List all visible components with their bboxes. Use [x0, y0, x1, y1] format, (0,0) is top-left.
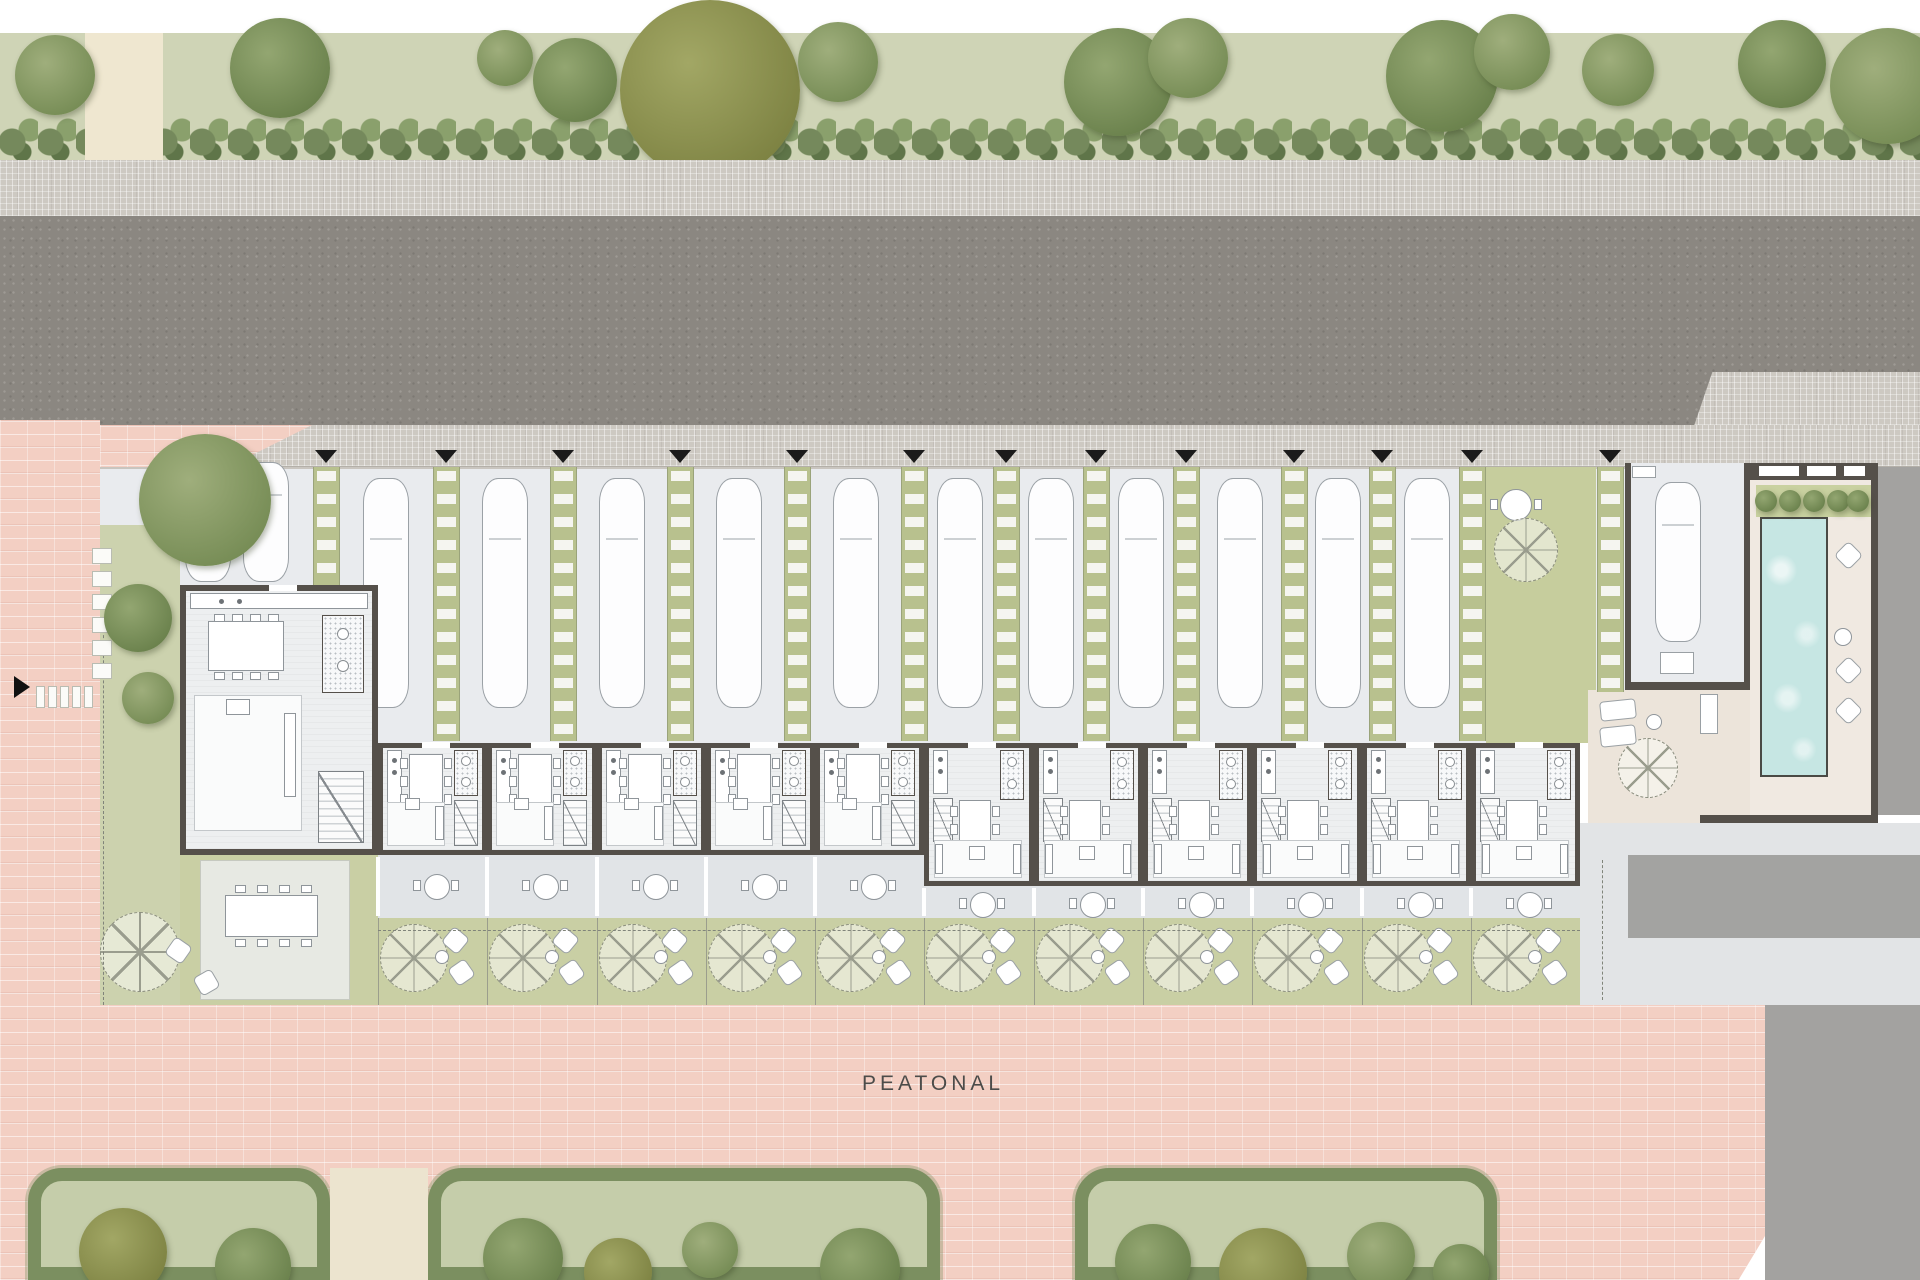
- sofa: [1482, 844, 1490, 874]
- staircase: [1371, 798, 1391, 842]
- garden-divider: [487, 918, 488, 1005]
- side-table-icon: [982, 950, 996, 964]
- staircase: [1261, 798, 1281, 842]
- tree-icon: [1847, 490, 1869, 512]
- dining-table: [208, 621, 284, 671]
- townhouse-unit: [815, 743, 924, 855]
- side-table-icon: [1528, 950, 1542, 964]
- bistro-table-icon: [424, 874, 450, 900]
- chair-icon: [1320, 824, 1328, 835]
- bathroom: [1438, 750, 1462, 800]
- chair-icon: [250, 672, 261, 680]
- side-table-icon: [545, 950, 559, 964]
- chair-icon: [509, 758, 517, 769]
- tree-icon: [477, 30, 533, 86]
- bathroom: [322, 615, 364, 693]
- bistro-table-icon: [643, 874, 669, 900]
- chair-icon: [881, 758, 889, 769]
- chair-icon: [1211, 824, 1219, 835]
- chair-icon: [400, 776, 408, 787]
- sink-icon: [237, 599, 242, 604]
- car-windshield: [370, 538, 402, 540]
- staircase: [933, 798, 953, 842]
- townhouse-unit: [1034, 743, 1143, 886]
- sofa: [1232, 844, 1240, 874]
- bistro-table-icon: [1298, 892, 1324, 918]
- chair-icon: [881, 776, 889, 787]
- sofa: [1560, 844, 1568, 874]
- side-table-icon: [1419, 950, 1433, 964]
- parked-car-icon: [1217, 478, 1263, 708]
- site-plan: PEATONAL: [0, 0, 1920, 1280]
- planting-strip: [1083, 467, 1110, 741]
- staircase: [891, 800, 915, 846]
- sink-icon: [392, 770, 397, 775]
- terrace-fence-post: [1469, 888, 1473, 916]
- car-windshield: [840, 538, 872, 540]
- tree-icon: [533, 38, 617, 122]
- kitchen-counter: [1043, 750, 1058, 794]
- toilet-icon: [898, 777, 908, 787]
- chair-icon: [444, 794, 452, 805]
- console-table: [1700, 694, 1718, 734]
- chair-icon: [1169, 806, 1177, 817]
- chair-icon: [232, 672, 243, 680]
- terrace-chair-icon: [413, 880, 421, 891]
- chair-icon: [1497, 824, 1505, 835]
- garden-divider: [378, 918, 379, 1005]
- townhouse-unit: [597, 743, 706, 855]
- sofa-table: [1079, 846, 1095, 860]
- garden-divider: [924, 918, 925, 1005]
- garden-divider: [1362, 918, 1363, 1005]
- parked-car-icon: [599, 478, 645, 708]
- terrace-chair-icon: [1216, 898, 1224, 909]
- terrace-chair-icon: [1544, 898, 1552, 909]
- side-table-icon: [763, 950, 777, 964]
- terrace-chair-icon: [522, 880, 530, 891]
- bathroom: [782, 750, 806, 796]
- tree-icon: [230, 18, 330, 118]
- chair-icon: [400, 758, 408, 769]
- entry-marker-icon: [903, 450, 925, 463]
- kitchen-counter: [1152, 750, 1167, 794]
- bistro-table-icon: [533, 874, 559, 900]
- terrace-fence-post: [376, 857, 380, 916]
- bathroom: [563, 750, 587, 796]
- toilet-icon: [1335, 779, 1345, 789]
- planting-strip: [1459, 467, 1486, 741]
- bathroom: [1110, 750, 1134, 800]
- toilet-icon: [1117, 779, 1127, 789]
- parked-car-icon: [1118, 478, 1164, 708]
- sink-icon: [789, 756, 799, 766]
- stove-icon: [720, 758, 725, 763]
- front-door-gap: [859, 742, 887, 748]
- side-table-icon: [1091, 950, 1105, 964]
- entry-marker-icon: [669, 450, 691, 463]
- planting-strip: [1597, 467, 1624, 692]
- kitchen-counter: [190, 593, 368, 609]
- tree-icon: [682, 1222, 738, 1278]
- chair-icon: [268, 672, 279, 680]
- townhouse-unit: [180, 585, 378, 855]
- bistro-table-icon: [1080, 892, 1106, 918]
- bathroom: [1547, 750, 1571, 800]
- chair-icon: [214, 614, 225, 622]
- chair-icon: [235, 885, 246, 893]
- chair-icon: [301, 939, 312, 947]
- sink-icon: [829, 770, 834, 775]
- outdoor-dining-table: [225, 895, 318, 937]
- bathroom: [1000, 750, 1024, 800]
- terrace-chair-icon: [741, 880, 749, 891]
- stepping-slats: [1285, 471, 1304, 737]
- parked-car-icon: [1655, 482, 1701, 642]
- sink-icon: [570, 756, 580, 766]
- terrace-chair-icon: [670, 880, 678, 891]
- terrace-chair-icon: [959, 898, 967, 909]
- sofa: [1013, 844, 1021, 874]
- staircase: [673, 800, 697, 846]
- toilet-icon: [1445, 779, 1455, 789]
- pedestrian-street-label: PEATONAL: [862, 1072, 1004, 1096]
- stepping-slats: [997, 471, 1016, 737]
- chair-icon: [1211, 806, 1219, 817]
- parked-car-icon: [482, 478, 528, 708]
- chair-icon: [950, 806, 958, 817]
- kitchen-counter: [1480, 750, 1495, 794]
- bistro-table-icon: [1408, 892, 1434, 918]
- chair-icon: [728, 758, 736, 769]
- stove-icon: [1266, 757, 1271, 762]
- garden-boundary-dashed: [378, 930, 1580, 931]
- staircase: [318, 771, 364, 843]
- toilet-icon: [1226, 779, 1236, 789]
- wall-window: [1843, 465, 1866, 477]
- chair-icon: [257, 939, 268, 947]
- terrace-fence-post: [1250, 888, 1254, 916]
- townhouse-unit: [487, 743, 597, 855]
- terrace-chair-icon: [888, 880, 896, 891]
- chair-icon: [257, 885, 268, 893]
- chair-icon: [509, 776, 517, 787]
- terrace-chair-icon: [1178, 898, 1186, 909]
- chair-icon: [663, 758, 671, 769]
- armchair: [514, 798, 529, 810]
- chair-icon: [301, 885, 312, 893]
- stepping-slats: [1373, 471, 1392, 737]
- side-table-icon: [435, 950, 449, 964]
- garden-divider: [1143, 918, 1144, 1005]
- carport-wall: [1744, 463, 1750, 690]
- sink-icon: [1226, 757, 1236, 767]
- chair-icon: [1320, 806, 1328, 817]
- chair-icon: [279, 885, 290, 893]
- car-windshield: [1411, 538, 1443, 540]
- front-door-gap: [968, 742, 996, 748]
- front-door-gap: [422, 742, 450, 748]
- parked-car-icon: [1028, 478, 1074, 708]
- sink-icon: [1445, 757, 1455, 767]
- planting-strip: [993, 467, 1020, 741]
- chair-icon: [619, 776, 627, 787]
- sofa: [1263, 844, 1271, 874]
- garden-divider: [597, 918, 598, 1005]
- tree-icon: [15, 35, 95, 115]
- sofa: [1045, 844, 1053, 874]
- asphalt-road: [0, 216, 1920, 425]
- chair-icon: [1278, 806, 1286, 817]
- armchair: [624, 798, 639, 810]
- entry-marker-icon: [1085, 450, 1107, 463]
- sofa: [544, 806, 553, 840]
- sofa: [763, 806, 772, 840]
- toilet-icon: [461, 777, 471, 787]
- chair-icon: [992, 806, 1000, 817]
- townhouse-unit: [1252, 743, 1362, 886]
- planting-strip: [667, 467, 694, 741]
- terrace-chair-icon: [632, 880, 640, 891]
- sofa: [1341, 844, 1349, 874]
- chair-icon: [232, 614, 243, 622]
- sofa: [935, 844, 943, 874]
- bathroom: [1219, 750, 1243, 800]
- sink-icon: [1376, 769, 1381, 774]
- parked-car-icon: [937, 478, 983, 708]
- bistro-table-icon: [752, 874, 778, 900]
- chair-icon: [1169, 824, 1177, 835]
- kitchen-counter: [933, 750, 948, 794]
- sink-icon: [1048, 769, 1053, 774]
- garden-divider: [1034, 918, 1035, 1005]
- sun-lounger-icon: [1599, 698, 1637, 722]
- tree-icon: [620, 0, 800, 180]
- terrace-fence-post: [1032, 888, 1036, 916]
- sink-icon: [938, 769, 943, 774]
- terrace-fence-post: [485, 857, 489, 916]
- courtyard-table-icon: [1500, 489, 1532, 521]
- parked-car-icon: [716, 478, 762, 708]
- stepping-stone: [48, 686, 57, 708]
- site-entry-arrow-icon: [14, 676, 30, 698]
- bistro-table-icon: [1517, 892, 1543, 918]
- wall-window: [1806, 465, 1837, 477]
- stove-icon: [1048, 757, 1053, 762]
- chair-icon: [1490, 499, 1498, 510]
- front-door-gap: [1406, 742, 1434, 748]
- carport-storage: [1660, 652, 1694, 674]
- bathroom: [891, 750, 915, 796]
- armchair: [733, 798, 748, 810]
- stove-icon: [1376, 757, 1381, 762]
- townhouse-unit: [1143, 743, 1252, 886]
- chair-icon: [1388, 806, 1396, 817]
- chair-icon: [444, 776, 452, 787]
- toilet-icon: [570, 777, 580, 787]
- staircase: [1480, 798, 1500, 842]
- front-door-gap: [1187, 742, 1215, 748]
- chair-icon: [1278, 824, 1286, 835]
- kitchen-counter: [1371, 750, 1386, 794]
- chair-icon: [772, 776, 780, 787]
- chair-icon: [1539, 806, 1547, 817]
- stepping-slats: [1463, 471, 1482, 737]
- entry-marker-icon: [1599, 450, 1621, 463]
- car-windshield: [1662, 524, 1694, 526]
- tree-icon: [139, 434, 271, 566]
- stepping-stone: [72, 686, 81, 708]
- stove-icon: [1485, 757, 1490, 762]
- car-windshield: [1322, 538, 1354, 540]
- stove-icon: [392, 758, 397, 763]
- side-table-icon: [1646, 714, 1662, 730]
- chair-icon: [444, 758, 452, 769]
- sink-icon: [1554, 757, 1564, 767]
- bistro-table-icon: [970, 892, 996, 918]
- chair-icon: [663, 776, 671, 787]
- garden-tree-icon: [1494, 518, 1558, 582]
- tree-icon: [1474, 14, 1550, 90]
- terrace-fence-post: [595, 857, 599, 916]
- garden-divider: [815, 918, 816, 1005]
- garden-divider: [706, 918, 707, 1005]
- sofa: [1451, 844, 1459, 874]
- entry-marker-icon: [1371, 450, 1393, 463]
- entry-marker-icon: [1175, 450, 1197, 463]
- stepping-stone: [92, 663, 112, 679]
- car-windshield: [944, 538, 976, 540]
- front-door-gap: [1296, 742, 1324, 748]
- south-garden-path: [330, 1168, 428, 1280]
- toilet-icon: [1007, 779, 1017, 789]
- stepping-stone: [92, 571, 112, 587]
- pool-float-icon: [1834, 628, 1852, 646]
- sofa: [1373, 844, 1381, 874]
- chair-icon: [1060, 806, 1068, 817]
- tree-icon: [122, 672, 174, 724]
- terrace-chair-icon: [1397, 898, 1405, 909]
- stepping-slats: [1087, 471, 1106, 737]
- front-door-gap: [641, 742, 669, 748]
- tree-icon: [1755, 490, 1777, 512]
- chair-icon: [553, 776, 561, 787]
- terrace-chair-icon: [451, 880, 459, 891]
- stepping-slats: [1601, 471, 1620, 688]
- east-boundary-dashed: [1602, 860, 1603, 1000]
- stepping-slats: [671, 471, 690, 737]
- tree-icon: [1827, 490, 1849, 512]
- chair-icon: [553, 794, 561, 805]
- chair-icon: [1430, 824, 1438, 835]
- carport-wall: [1625, 682, 1750, 690]
- north-sidewalk: [0, 160, 1920, 216]
- terrace-chair-icon: [1325, 898, 1333, 909]
- sofa-table: [969, 846, 985, 860]
- sink-icon: [1485, 769, 1490, 774]
- sink-icon: [461, 756, 471, 766]
- toilet-icon: [1554, 779, 1564, 789]
- toilet-icon: [337, 660, 349, 672]
- planting-strip: [1369, 467, 1396, 741]
- car-windshield: [723, 538, 755, 540]
- chair-icon: [1060, 824, 1068, 835]
- entry-marker-icon: [995, 450, 1017, 463]
- sink-icon: [1157, 769, 1162, 774]
- terrace-chair-icon: [779, 880, 787, 891]
- sofa: [435, 806, 444, 840]
- sink-icon: [1266, 769, 1271, 774]
- car-windshield: [489, 538, 521, 540]
- southeast-paving: [1765, 1005, 1920, 1280]
- chair-icon: [837, 776, 845, 787]
- garden-tree-icon: [1618, 738, 1678, 798]
- service-ramp: [1628, 855, 1920, 938]
- chair-icon: [1102, 824, 1110, 835]
- front-door-gap: [1078, 742, 1106, 748]
- sofa: [654, 806, 663, 840]
- armchair: [405, 798, 420, 810]
- chair-icon: [1534, 499, 1542, 510]
- planting-strip: [1173, 467, 1200, 741]
- stove-icon: [829, 758, 834, 763]
- sink-icon: [680, 756, 690, 766]
- sink-icon: [898, 756, 908, 766]
- tree-icon: [798, 22, 878, 102]
- chair-icon: [619, 758, 627, 769]
- wall-window: [1758, 465, 1800, 477]
- sun-lounger-icon: [1599, 724, 1637, 748]
- sink-icon: [501, 770, 506, 775]
- bathroom: [673, 750, 697, 796]
- townhouse-unit: [706, 743, 815, 855]
- sink-icon: [337, 628, 349, 640]
- sink-icon: [611, 770, 616, 775]
- chair-icon: [772, 794, 780, 805]
- tree-icon: [1148, 18, 1228, 98]
- stepping-stone: [36, 686, 45, 708]
- tree-icon: [1738, 20, 1826, 108]
- side-table-icon: [1200, 950, 1214, 964]
- side-table-icon: [1310, 950, 1324, 964]
- toilet-icon: [789, 777, 799, 787]
- terrace-chair-icon: [1107, 898, 1115, 909]
- terrace-fence-post: [704, 857, 708, 916]
- staircase: [1043, 798, 1063, 842]
- stove-icon: [611, 758, 616, 763]
- terrace-fence-post: [1141, 888, 1145, 916]
- chair-icon: [663, 794, 671, 805]
- townhouse-unit: [924, 743, 1034, 886]
- swimming-pool: [1760, 517, 1828, 777]
- parked-car-icon: [1315, 478, 1361, 708]
- planting-strip: [901, 467, 928, 741]
- terrace-fence-post: [1360, 888, 1364, 916]
- sofa: [1123, 844, 1131, 874]
- terrace-chair-icon: [850, 880, 858, 891]
- townhouse-unit: [1471, 743, 1580, 886]
- front-door-gap: [1515, 742, 1543, 748]
- car-windshield: [606, 538, 638, 540]
- sofa-table: [1188, 846, 1204, 860]
- staircase: [454, 800, 478, 846]
- chair-icon: [1497, 806, 1505, 817]
- chair-icon: [250, 614, 261, 622]
- car-windshield: [1125, 538, 1157, 540]
- stove-icon: [1157, 757, 1162, 762]
- carport-wall: [1625, 463, 1631, 690]
- sink-icon: [1117, 757, 1127, 767]
